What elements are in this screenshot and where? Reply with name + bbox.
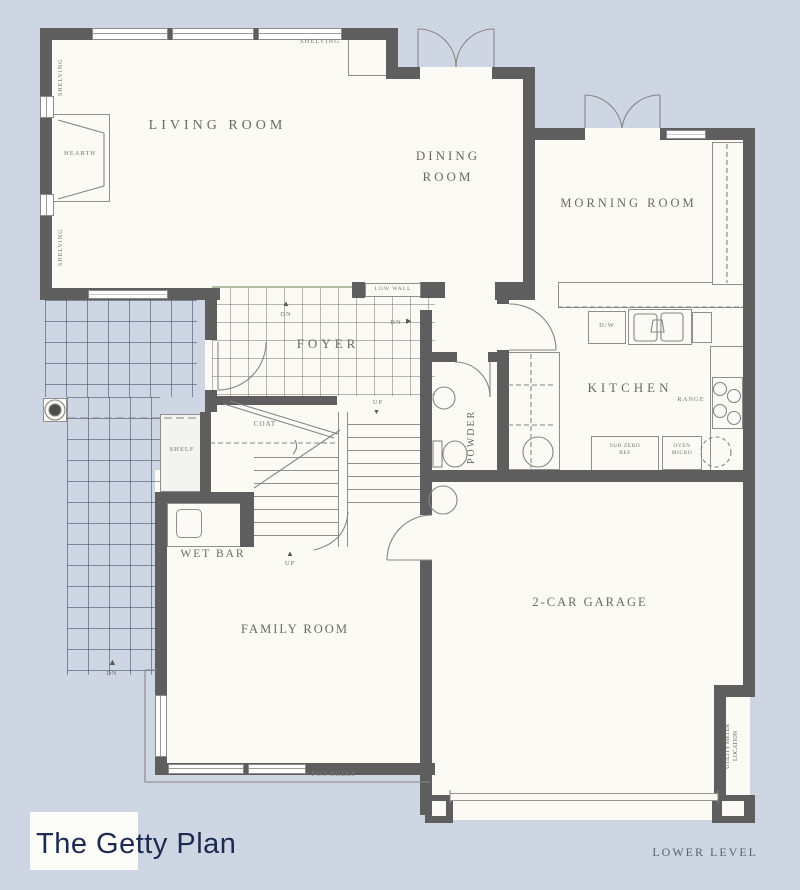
shelf-label: SHELF xyxy=(162,446,202,453)
dn-arrow-icon: ▲ xyxy=(282,299,290,308)
kitchen-peninsula-counter xyxy=(558,282,745,308)
room-label-morning: MORNING ROOM xyxy=(556,196,701,211)
stair-stringer xyxy=(338,412,348,547)
pot-shelf-label: POT SHELF xyxy=(298,770,370,778)
utility-label-line2: LOCATION xyxy=(732,700,740,792)
oven-micro-label: OVEN MICRO xyxy=(663,443,701,457)
low-wall-label: LOW WALL xyxy=(366,286,420,292)
wall xyxy=(523,67,535,300)
hearth-alcove xyxy=(46,114,110,202)
low-wall-post xyxy=(420,282,445,298)
utility-label-line1: UTILITY METER xyxy=(724,700,732,792)
dn-arrow-icon: ▶ xyxy=(406,317,411,325)
dn-label: DN xyxy=(276,311,296,318)
patio-upper xyxy=(45,300,197,397)
kitchen-sink-counter xyxy=(628,309,692,345)
window xyxy=(92,28,168,40)
shelf-closet xyxy=(160,414,201,492)
subzero-label-line2: REF xyxy=(593,450,657,457)
floor-plan: LIVING ROOM DINING ROOM MORNING ROOM KIT… xyxy=(0,0,800,890)
dishwasher-label: D/W xyxy=(592,322,622,329)
wall xyxy=(424,352,457,362)
dn-arrow-icon: ▲ xyxy=(108,657,117,667)
wall xyxy=(386,67,420,79)
up-label: UP xyxy=(280,560,300,567)
up-label: UP xyxy=(368,399,388,406)
powder-room-floor xyxy=(424,348,500,485)
window xyxy=(666,130,706,139)
room-label-powder: POWDER xyxy=(466,394,477,479)
door-swing xyxy=(622,95,660,128)
coat-label: COAT xyxy=(243,420,287,428)
stair-run-left xyxy=(254,445,338,547)
up-arrow-icon: ▼ xyxy=(373,408,380,416)
patio-lower xyxy=(67,397,160,675)
range-cabinet xyxy=(712,377,743,429)
kitchen-left-cabinets xyxy=(505,352,560,470)
dn-label: DN xyxy=(386,319,406,326)
window xyxy=(88,290,168,299)
wet-bar-sink xyxy=(176,509,202,538)
window xyxy=(168,764,244,774)
window xyxy=(40,194,54,216)
wall xyxy=(205,396,337,405)
oven-label-line2: MICRO xyxy=(663,450,701,457)
wall xyxy=(420,560,432,815)
subzero-label-line1: SUB ZERO xyxy=(593,443,657,450)
door-swing xyxy=(585,95,622,128)
low-wall-post xyxy=(352,282,365,298)
window xyxy=(172,28,254,40)
wall xyxy=(535,128,585,140)
wall xyxy=(497,352,509,482)
shelving-label: SHELVING xyxy=(58,214,64,280)
room-label-dining: DINING ROOM xyxy=(398,146,498,188)
hearth-label: HEARTH xyxy=(58,150,102,157)
level-label: LOWER LEVEL xyxy=(648,845,758,860)
oven-label-line1: OVEN xyxy=(663,443,701,450)
carpet-edge-line xyxy=(212,286,352,288)
wall xyxy=(420,482,432,515)
window xyxy=(155,695,167,757)
room-label-living: LIVING ROOM xyxy=(130,118,305,134)
garage-floor xyxy=(425,470,750,820)
wall xyxy=(420,362,432,470)
wall xyxy=(714,685,755,697)
plan-title: The Getty Plan xyxy=(36,828,236,861)
range-label: RANGE xyxy=(674,396,708,403)
room-label-family: FAMILY ROOM xyxy=(235,622,355,637)
patio-column xyxy=(43,398,67,422)
room-label-foyer: FOYER xyxy=(288,336,368,352)
utility-notch xyxy=(722,801,744,816)
garage-door xyxy=(450,793,718,801)
wall-notch xyxy=(432,801,446,816)
door-swing xyxy=(456,29,494,67)
shelving-label: SHELVING xyxy=(58,46,64,108)
wall xyxy=(743,128,755,697)
wall xyxy=(495,282,535,300)
subzero-label: SUB ZERO REF xyxy=(593,443,657,457)
room-label-kitchen: KITCHEN xyxy=(565,380,695,396)
shelving-label: SHELVING xyxy=(294,38,346,45)
wall xyxy=(40,28,52,300)
utility-meter-label: UTILITY METER LOCATION xyxy=(724,700,740,792)
wall xyxy=(205,288,217,340)
wall xyxy=(240,492,254,547)
counter-box xyxy=(692,312,712,343)
up-arrow-icon: ▲ xyxy=(286,549,294,558)
stair-run-right xyxy=(348,412,420,515)
room-label-wet-bar: WET BAR xyxy=(168,548,258,560)
door-swing xyxy=(418,29,456,67)
wall xyxy=(200,412,211,494)
window xyxy=(40,96,54,118)
morning-room-counter xyxy=(712,142,745,285)
dn-label: DN xyxy=(102,670,122,677)
room-label-garage: 2-CAR GARAGE xyxy=(525,595,655,610)
